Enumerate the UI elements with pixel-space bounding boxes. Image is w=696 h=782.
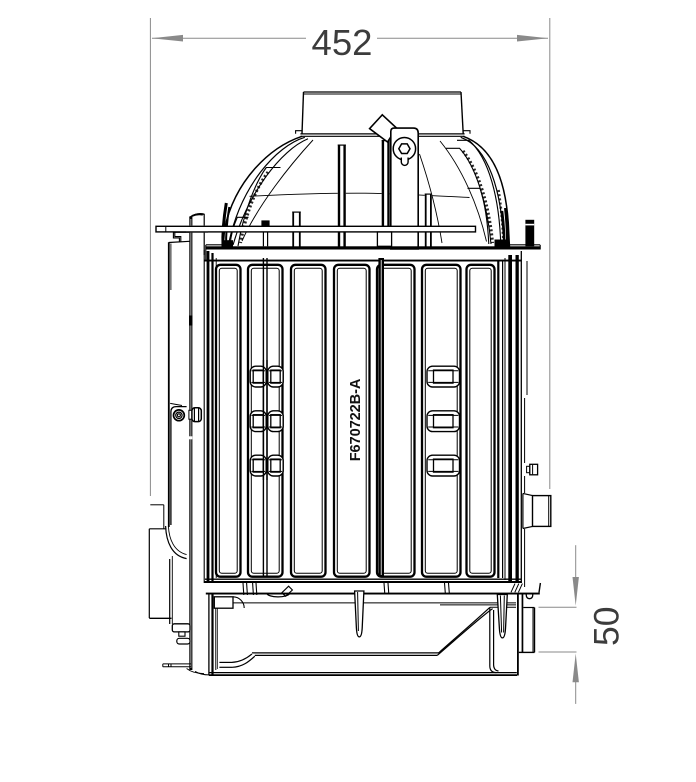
svg-text:50: 50	[587, 607, 627, 647]
svg-text:452: 452	[312, 22, 373, 63]
svg-text:F670722B-A: F670722B-A	[348, 378, 364, 461]
